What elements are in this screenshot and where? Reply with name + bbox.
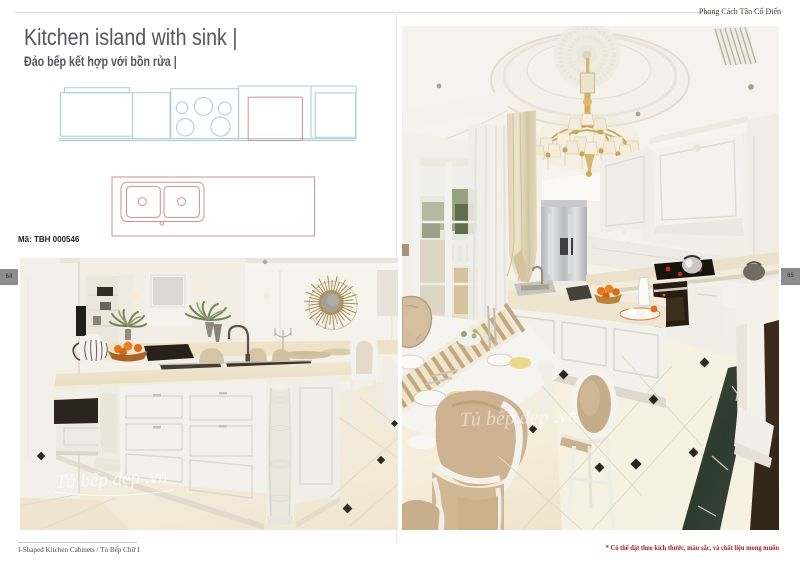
svg-text:Tủ bếp đẹp .vn: Tủ bếp đẹp .vn	[459, 405, 577, 431]
